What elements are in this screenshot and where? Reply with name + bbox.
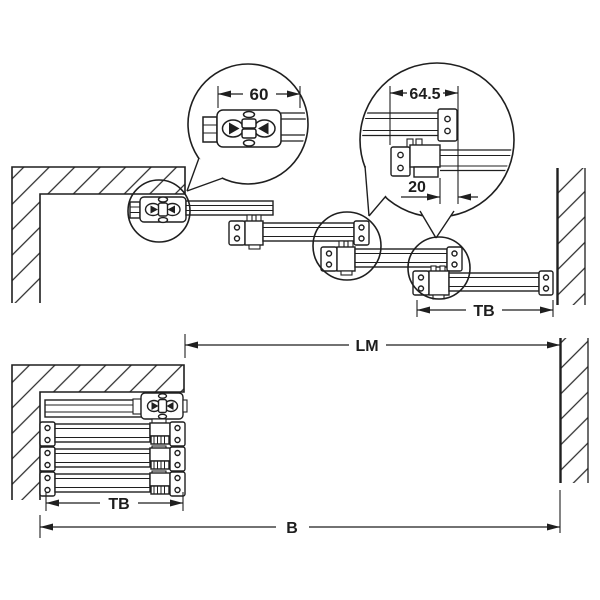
- stack-row-1: [45, 393, 187, 423]
- rail3-profile: [355, 249, 447, 267]
- detail-carriage-block: [410, 145, 440, 167]
- detail-upper-bracket: [438, 109, 457, 141]
- diagram-page: 60: [0, 0, 600, 600]
- tb-bottom-label: TB: [108, 496, 129, 513]
- stack-row-3: [40, 447, 185, 475]
- callout-tail-64-5-right: [420, 211, 454, 238]
- dim-20-label: 20: [408, 179, 426, 196]
- detail-lower-bracket: [391, 147, 410, 176]
- collapsed-rail-stack: [40, 393, 187, 496]
- dim-64-5-label: 64.5: [409, 86, 440, 103]
- carriage-block: [245, 221, 263, 245]
- dim-60-label: 60: [250, 85, 269, 104]
- stack-row-4: [40, 472, 185, 496]
- rail1-left-tab: [130, 202, 140, 218]
- slide-rail-4: [413, 266, 553, 299]
- wall-top-right: [557, 168, 585, 305]
- dimension-tb-bottom: TB: [46, 492, 183, 513]
- carriage-block: [429, 271, 449, 295]
- detail-circle-64-5: 64.5 20: [360, 63, 514, 238]
- wall-top-left: [12, 167, 185, 303]
- lm-label: LM: [355, 338, 378, 355]
- b-label: B: [286, 520, 298, 537]
- rail1-profile: [186, 201, 273, 215]
- wall-bottom-right: [560, 338, 588, 483]
- installation-diagram: 60: [0, 0, 600, 600]
- tb-top-label: TB: [473, 303, 494, 320]
- carriage-block: [337, 247, 355, 271]
- dimension-lm: LM: [185, 334, 560, 358]
- detail60-left-tab: [203, 117, 217, 142]
- rail2-profile: [263, 223, 354, 241]
- detail-circle-60: 60: [187, 64, 308, 191]
- dimension-tb-top: TB: [417, 300, 553, 320]
- stack-row-2: [40, 422, 185, 450]
